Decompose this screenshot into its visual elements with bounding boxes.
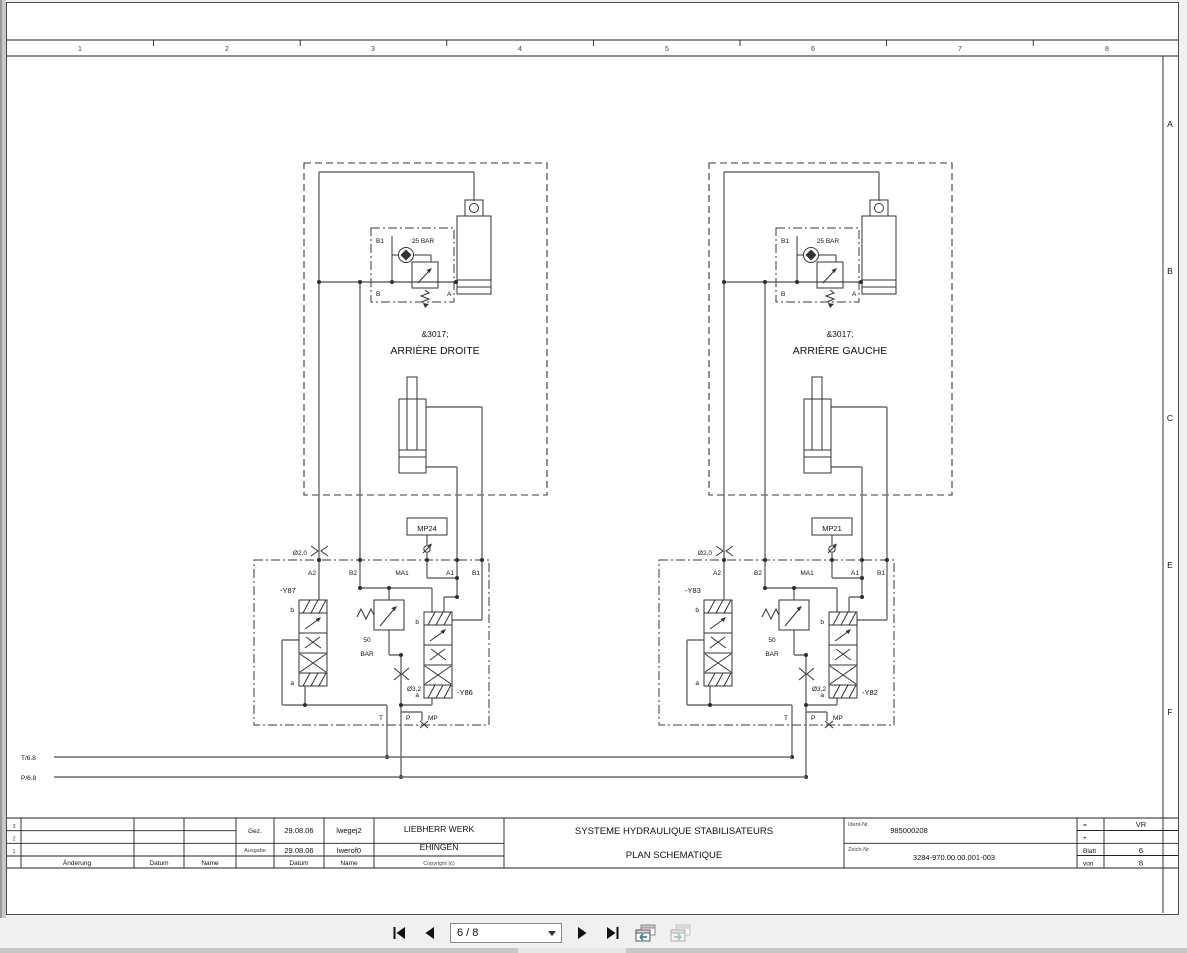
dropdown-arrow-icon (548, 931, 556, 936)
row-label: C (1167, 413, 1173, 423)
last-page-button[interactable] (602, 922, 624, 944)
station-title: ARRIÈRE GAUCHE (793, 344, 888, 357)
orifice-label: Ø3,2 (407, 686, 421, 693)
row-label: B (1167, 266, 1173, 276)
next-view-icon (669, 923, 693, 943)
gez-name: lwegej2 (336, 826, 361, 835)
station-code: &3017; (422, 329, 449, 339)
drawing-title-line2: PLAN SCHEMATIQUE (626, 850, 722, 861)
port-label: B1 (376, 238, 384, 245)
port-label: A2 (308, 570, 316, 577)
column-label: 1 (78, 46, 82, 53)
column-label: 8 (1105, 46, 1109, 53)
bottom-edge-highlight (518, 948, 626, 953)
port-label: T (784, 715, 788, 722)
outrigger-station-right-rear: B1 25 BAR B A &3017; ARRIÈRE DROITE MP24… (254, 163, 547, 779)
solenoid-label: a (695, 680, 699, 687)
row-label: A (1167, 119, 1173, 129)
von-value: 8 (1139, 859, 1143, 868)
column-header-datum-2: Datum (289, 860, 308, 867)
bottom-edge-strip (0, 948, 1187, 953)
port-label: MP (833, 715, 843, 722)
solenoid-label: b (820, 619, 824, 626)
port-label: T (379, 715, 383, 722)
port-label: B1 (877, 570, 885, 577)
port-label: MA1 (800, 570, 814, 577)
solenoid-label: a (415, 692, 419, 699)
supply-lines: T/6.8 P/6.8 (21, 755, 806, 782)
previous-page-button[interactable] (419, 922, 441, 944)
company-name-line2: EHINGEN (420, 842, 459, 852)
column-header-name-2: Name (340, 860, 358, 867)
port-label: P (406, 715, 410, 722)
line-ref-p: P/6.8 (21, 775, 37, 782)
ident-nr-label: Ident-Nr. (848, 822, 870, 828)
pressure-value: 50 (768, 637, 776, 644)
pressure-unit: BAR (360, 651, 374, 658)
station-title: ARRIÈRE DROITE (390, 344, 479, 357)
first-page-button[interactable] (388, 922, 410, 944)
schematic-drawing: 1 2 3 4 5 6 7 8 A B C E F B1 25 BAR B A (7, 3, 1178, 914)
column-header-datum: Datum (149, 860, 168, 867)
outrigger-station-left-rear: B1 25 BAR B A &3017; ARRIÈRE GAUCHE MP21… (659, 163, 952, 779)
solenoid-label: b (290, 607, 294, 614)
von-label: von (1083, 861, 1094, 868)
port-label: A1 (851, 570, 859, 577)
previous-page-icon (422, 925, 438, 941)
ausgabe-date: 29.08.06 (284, 846, 313, 855)
column-header-name: Name (201, 860, 219, 867)
valve-id: -Y87 (280, 586, 296, 595)
drawing-sheet: 1 2 3 4 5 6 7 8 A B C E F B1 25 BAR B A (6, 2, 1179, 915)
line-ref-t: T/6.8 (21, 755, 36, 762)
zeich-nr-label: Zeich-Nr. (848, 847, 871, 853)
first-page-icon (391, 925, 407, 941)
revision-number: 2 (12, 837, 15, 843)
port-label: B (376, 291, 380, 298)
port-label: B (781, 291, 785, 298)
column-label: 4 (518, 46, 522, 53)
eq-value: VR (1136, 820, 1147, 829)
port-label: B2 (349, 570, 357, 577)
row-label: F (1167, 707, 1172, 717)
row-label: E (1167, 560, 1173, 570)
pdf-viewer-window: { "frame": { "columns": ["1","2","3","4"… (0, 0, 1187, 953)
previous-view-icon (634, 923, 658, 943)
eq-label: = (1083, 822, 1087, 829)
measure-point-label: MP21 (822, 524, 842, 533)
gez-label: Gez. (248, 828, 262, 835)
port-label: A (447, 291, 452, 298)
zeich-nr-value: 3284-970.00.00.001-003 (913, 853, 995, 862)
page-number-value: 6 / 8 (451, 927, 548, 939)
title-block: 3 2 1 Änderung Datum Name Gez. 29.08.06 … (7, 818, 1178, 868)
port-label: A1 (446, 570, 454, 577)
column-header-aenderung: Änderung (63, 859, 92, 867)
station-code: &3017; (827, 329, 854, 339)
port-label: P (811, 715, 815, 722)
port-label: MP (428, 715, 438, 722)
company-name-line1: LIEBHERR WERK (404, 824, 475, 834)
solenoid-label: b (695, 607, 699, 614)
pressure-label: 25 BAR (817, 238, 840, 245)
port-label: B2 (754, 570, 762, 577)
column-label: 6 (811, 46, 815, 53)
plus-label: + (1083, 835, 1087, 842)
blatt-value: 6 (1139, 846, 1143, 855)
solenoid-label: a (290, 680, 294, 687)
last-page-icon (605, 925, 621, 941)
column-label: 2 (225, 46, 229, 53)
next-page-button[interactable] (571, 922, 593, 944)
solenoid-label: b (415, 619, 419, 626)
column-label: 3 (371, 46, 375, 53)
ausgabe-name: lwerof0 (337, 846, 361, 855)
orifice-label: Ø2,0 (293, 550, 307, 557)
revision-number: 1 (12, 849, 15, 855)
viewer-toolbar: 6 / 8 (0, 918, 1187, 948)
frame: 1 2 3 4 5 6 7 8 A B C E F (7, 40, 1178, 913)
page-number-combobox[interactable]: 6 / 8 (450, 923, 562, 943)
drawing-title-line1: SYSTEME HYDRAULIQUE STABILISATEURS (575, 826, 773, 837)
ausgabe-label: Ausgabe (244, 848, 266, 854)
pressure-unit: BAR (765, 651, 779, 658)
measure-point-label: MP24 (417, 524, 437, 533)
column-label: 7 (958, 46, 962, 53)
valve-id: -Y83 (685, 586, 701, 595)
next-view-button[interactable] (668, 922, 694, 944)
column-label: 5 (665, 46, 669, 53)
copyright-label: Copyright (c) (423, 861, 455, 867)
port-label: MA1 (395, 570, 409, 577)
port-label: B1 (472, 570, 480, 577)
next-page-icon (574, 925, 590, 941)
orifice-label: Ø2,0 (698, 550, 712, 557)
page-navigation: 6 / 8 (388, 920, 694, 946)
port-label: A2 (713, 570, 721, 577)
previous-view-button[interactable] (633, 922, 659, 944)
port-label: B1 (781, 238, 789, 245)
revision-number: 3 (12, 824, 15, 830)
valve-id: -Y82 (862, 688, 878, 697)
valve-id: -Y86 (457, 688, 473, 697)
pressure-value: 50 (363, 637, 371, 644)
gez-date: 29.08.06 (284, 826, 313, 835)
orifice-label: Ø3,2 (812, 686, 826, 693)
port-label: A (852, 291, 857, 298)
solenoid-label: a (820, 692, 824, 699)
pressure-label: 25 BAR (412, 238, 435, 245)
ident-nr-value: 985000208 (890, 826, 928, 835)
blatt-label: Blatt (1083, 848, 1096, 855)
